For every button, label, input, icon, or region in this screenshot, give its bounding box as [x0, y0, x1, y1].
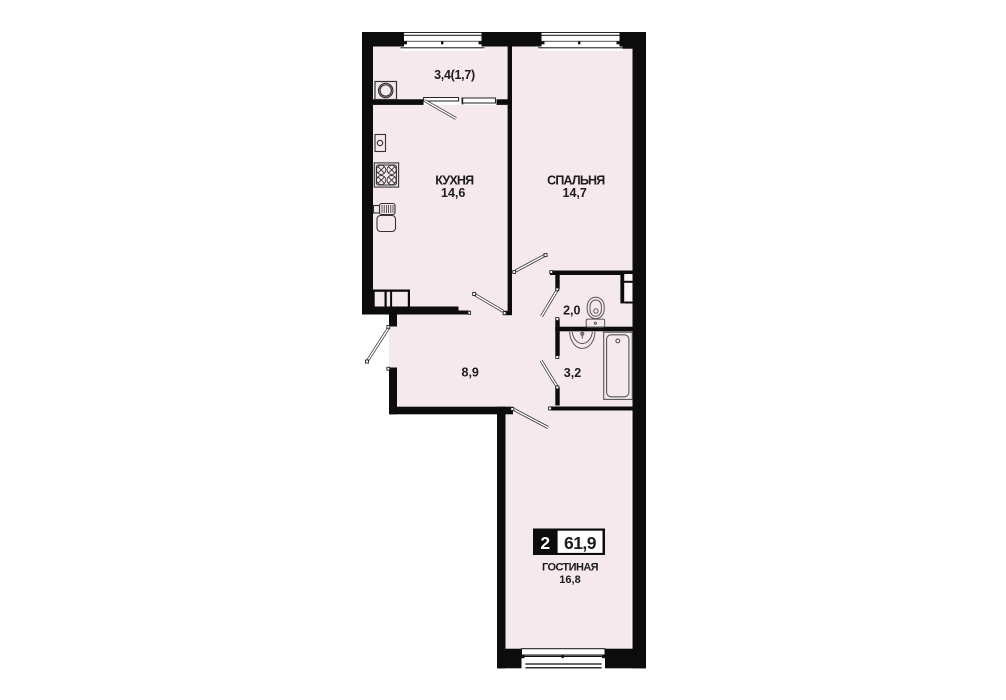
- svg-text:61,9: 61,9: [564, 533, 597, 553]
- svg-text:8,9: 8,9: [462, 365, 479, 379]
- svg-text:3,2: 3,2: [564, 366, 581, 380]
- svg-text:14,6: 14,6: [441, 186, 465, 200]
- svg-text:16,8: 16,8: [559, 574, 580, 586]
- svg-text:3,4(1,7): 3,4(1,7): [434, 68, 475, 82]
- svg-text:2: 2: [540, 533, 550, 553]
- svg-text:ГОСТИНАЯ: ГОСТИНАЯ: [542, 562, 599, 574]
- svg-text:2,0: 2,0: [563, 303, 580, 317]
- svg-text:14,7: 14,7: [563, 186, 587, 200]
